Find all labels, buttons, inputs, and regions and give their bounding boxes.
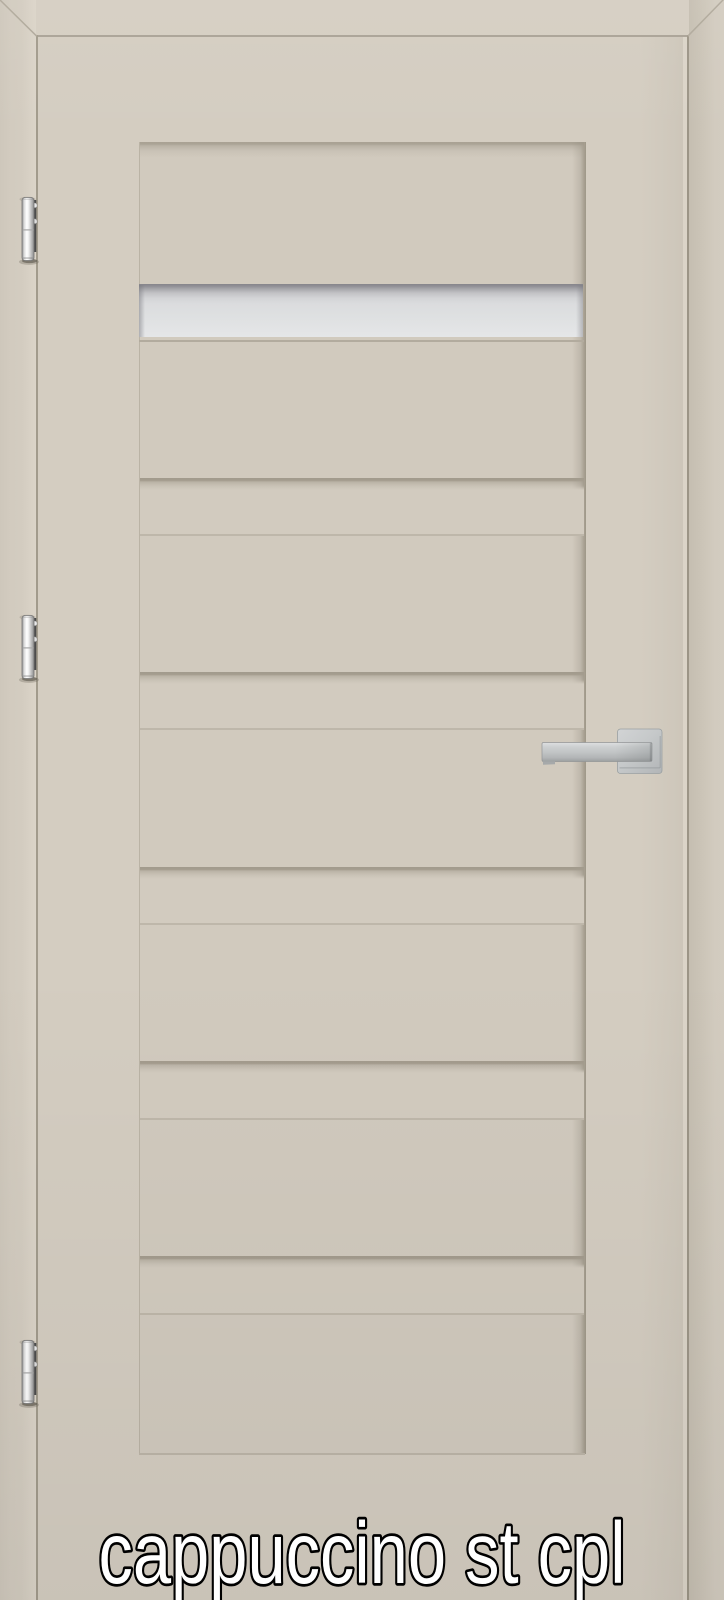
svg-text:cappuccino st cpl: cappuccino st cpl	[99, 1505, 626, 1600]
